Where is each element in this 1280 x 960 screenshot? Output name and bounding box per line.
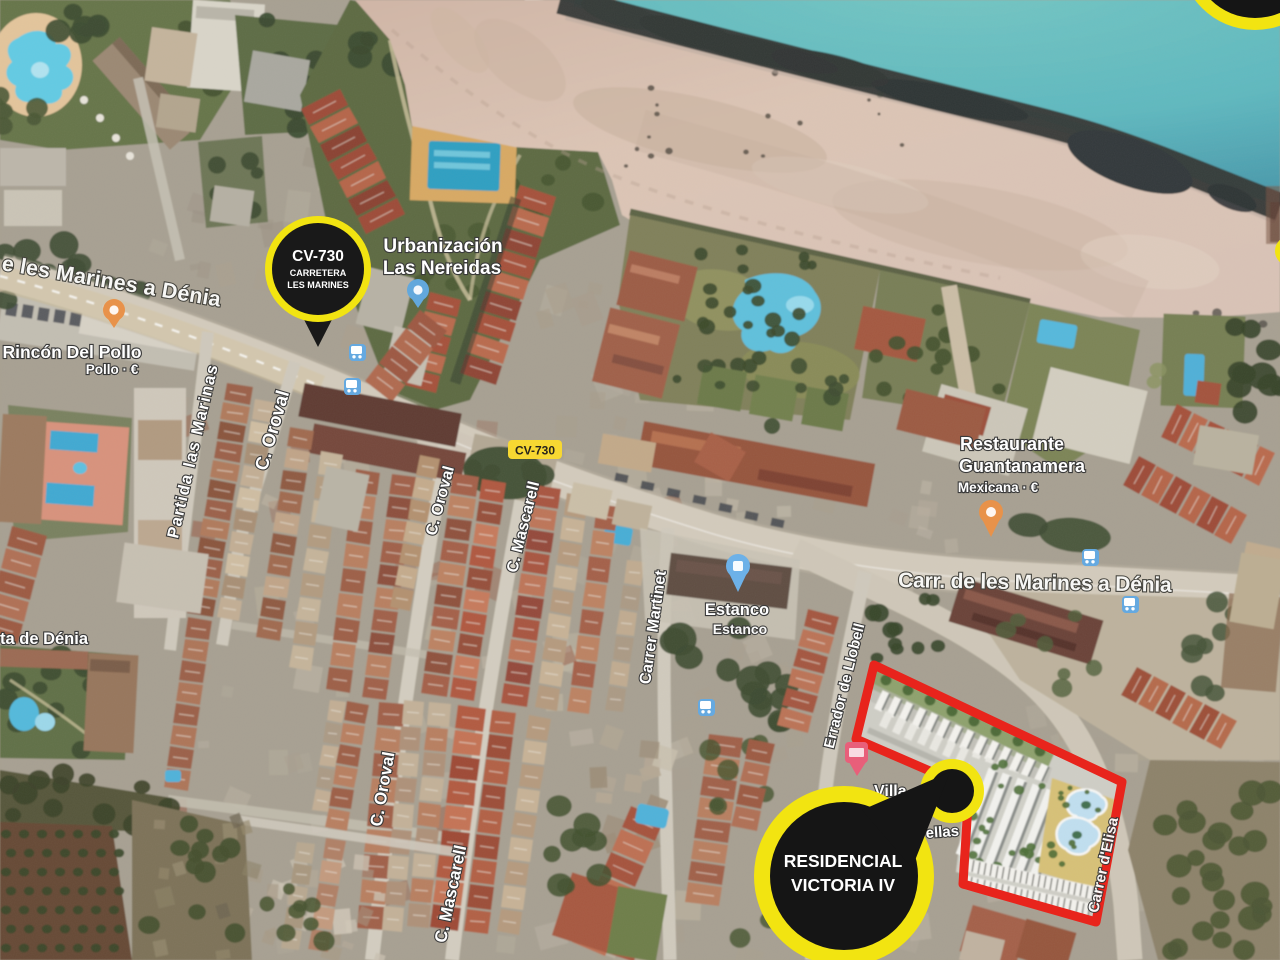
svg-text:ellas: ellas	[925, 823, 959, 842]
svg-text:CARRETERA: CARRETERA	[290, 268, 347, 278]
svg-text:LES MARINES: LES MARINES	[287, 280, 349, 290]
svg-text:Estanco: Estanco	[713, 621, 767, 637]
svg-text:Urbanización: Urbanización	[383, 236, 502, 257]
svg-text:RESIDENCIAL: RESIDENCIAL	[784, 851, 903, 871]
svg-text:CV-730: CV-730	[292, 248, 344, 265]
svg-text:CV-730: CV-730	[515, 444, 555, 458]
svg-text:Estanco: Estanco	[705, 601, 769, 619]
svg-text:Pollo · €: Pollo · €	[86, 362, 139, 377]
svg-text:Las Nereidas: Las Nereidas	[383, 258, 501, 279]
svg-text:Guantanamera: Guantanamera	[959, 456, 1086, 476]
svg-text:Rincón Del Pollo: Rincón Del Pollo	[2, 342, 141, 362]
svg-text:ta de Dénia: ta de Dénia	[0, 630, 89, 648]
svg-text:Mexicana · €: Mexicana · €	[958, 480, 1039, 495]
svg-text:VICTORIA IV: VICTORIA IV	[791, 875, 895, 895]
svg-text:Restaurante: Restaurante	[960, 434, 1064, 454]
svg-text:Carr. de les Marines a Dénia: Carr. de les Marines a Dénia	[898, 569, 1172, 597]
